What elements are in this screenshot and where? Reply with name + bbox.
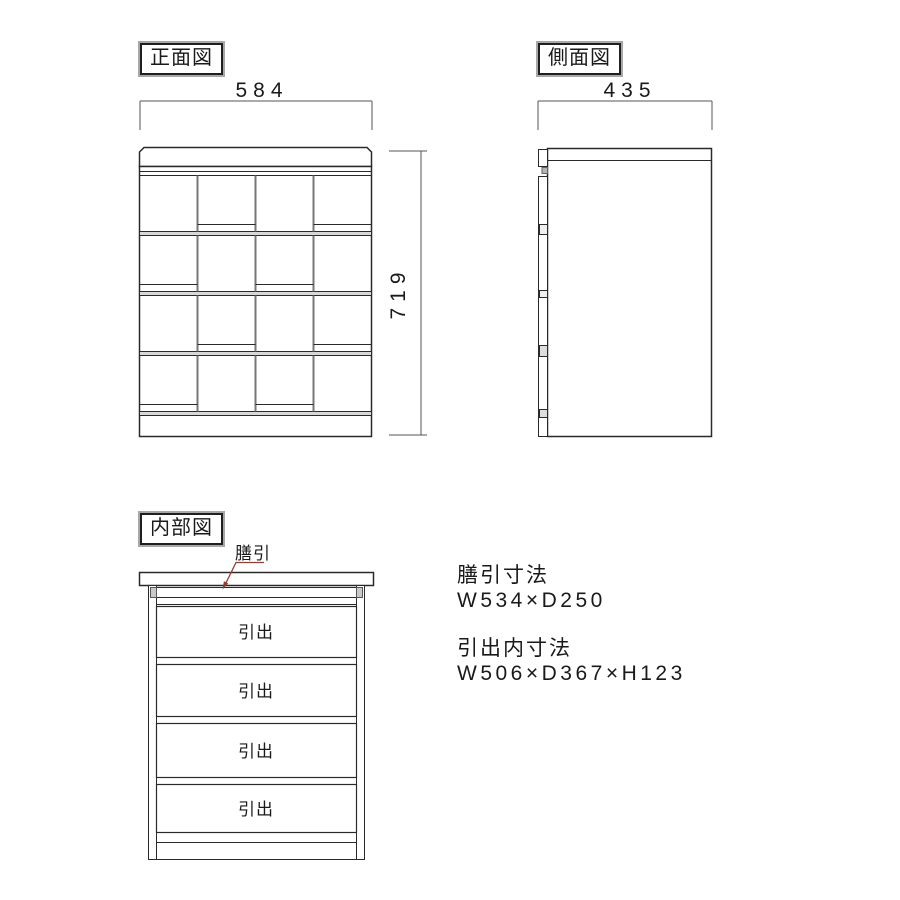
drawer-label-4: 引出: [238, 800, 274, 819]
technical-drawing-page: 584 719: [0, 0, 900, 900]
drawer-spec-value: W506×D367×H123: [457, 661, 686, 686]
spec-spacer: [457, 613, 686, 636]
specifications-block: 膳引寸法 W534×D250 引出内寸法 W506×D367×H123: [457, 563, 686, 686]
side-width-dim-label: 435: [603, 79, 656, 102]
front-view-title: 正面図: [140, 43, 223, 75]
tray-annotation-label: 膳引: [235, 544, 271, 563]
tray-spec-heading: 膳引寸法: [457, 563, 686, 588]
drawer-spec-heading: 引出内寸法: [457, 636, 686, 661]
internal-right-panel: [357, 586, 365, 860]
side-view-drawing: 435: [538, 79, 712, 437]
side-view-title: 側面図: [538, 43, 621, 75]
internal-tray: [157, 588, 357, 598]
drawer-label-3: 引出: [238, 742, 274, 761]
front-height-dim-label: 719: [387, 266, 410, 319]
drawer-label-2: 引出: [238, 682, 274, 701]
drawing-canvas: 584 719: [0, 0, 900, 900]
front-top-board: [140, 148, 372, 167]
side-front-strip: [539, 150, 548, 437]
front-width-dimension: [140, 101, 372, 130]
internal-top-board: [140, 573, 374, 586]
front-width-dim-label: 584: [235, 79, 288, 102]
front-view-drawing: 584 719: [140, 79, 428, 437]
side-body: [548, 149, 712, 437]
internal-view-drawing: 引出 引出 引出 引出 膳引: [140, 544, 374, 860]
drawer-label-1: 引出: [238, 623, 274, 642]
tray-spec-value: W534×D250: [457, 588, 686, 613]
side-width-dimension: [538, 101, 712, 130]
internal-view-title: 内部図: [140, 513, 223, 545]
internal-left-panel: [149, 586, 157, 860]
